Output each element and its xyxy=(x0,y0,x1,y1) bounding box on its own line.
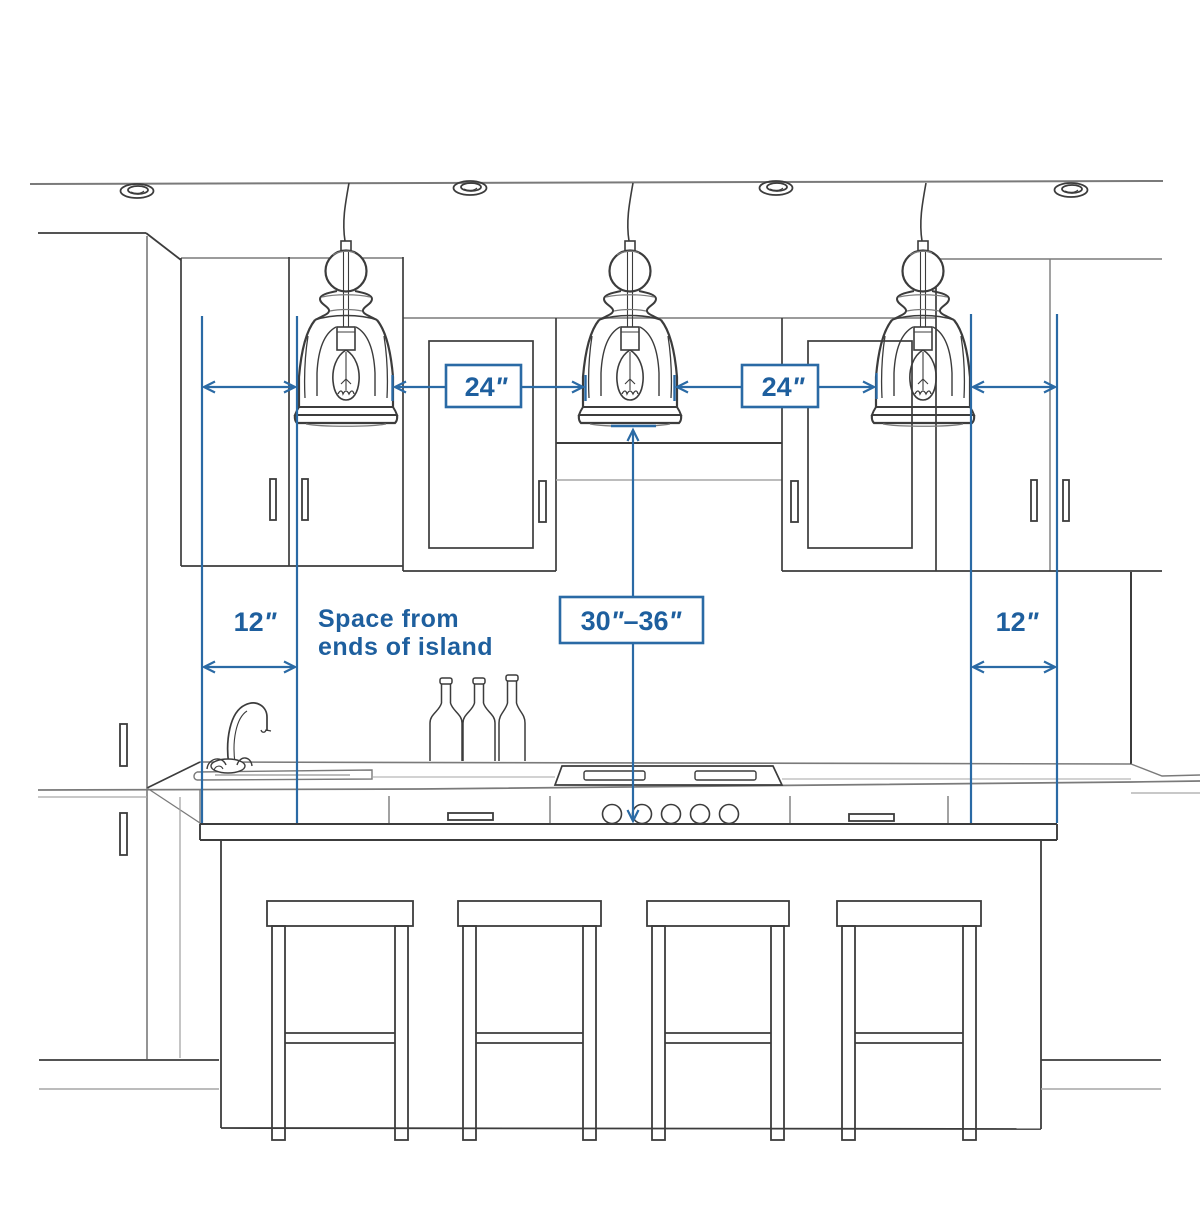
svg-text:12": 12" xyxy=(234,607,278,637)
svg-text:12": 12" xyxy=(996,607,1040,637)
svg-text:30"–36": 30"–36" xyxy=(581,606,683,636)
svg-text:ends of island: ends of island xyxy=(318,633,493,661)
svg-text:Space from: Space from xyxy=(318,605,459,633)
svg-text:24": 24" xyxy=(762,372,806,402)
svg-text:24": 24" xyxy=(465,372,509,402)
